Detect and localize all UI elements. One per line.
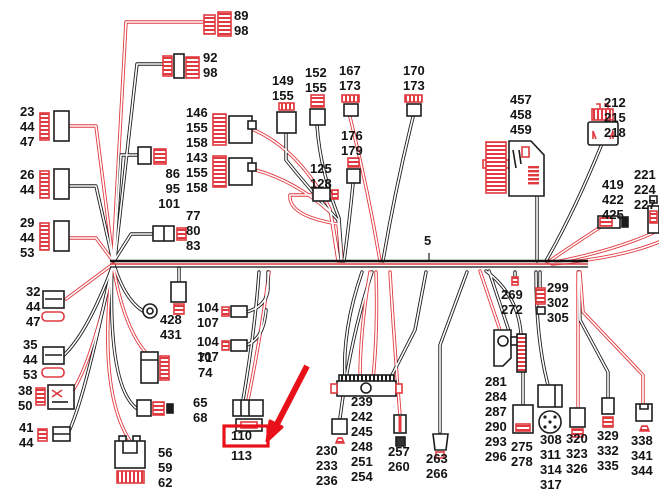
connector-299-302-305	[536, 288, 545, 314]
connector-65-68	[137, 400, 173, 416]
label-26-44: 26 44	[20, 167, 34, 197]
connector-77-80-83	[153, 226, 186, 241]
label-170-173: 170 173	[403, 63, 425, 93]
connector-32-44-47	[42, 291, 64, 321]
wire-black	[440, 272, 467, 432]
wire-red	[68, 238, 113, 261]
connector-stub-269-272	[512, 277, 518, 285]
label-146-155-158: 146 155 158	[186, 105, 208, 150]
label-299-302-305: 299 302 305	[547, 280, 569, 325]
wire-black	[114, 234, 155, 261]
connector-35-44-53	[42, 347, 64, 377]
connector-176-179	[347, 158, 360, 183]
connector-170-173	[405, 95, 422, 116]
label-329-332-335: 329 332 335	[597, 428, 619, 473]
connector-26-44	[40, 169, 69, 199]
label-125-128: 125 128	[310, 161, 332, 191]
wire-core	[114, 234, 155, 261]
label-338-341-344: 338 341 344	[631, 433, 653, 478]
label-419-422-425: 419 422 425	[602, 177, 624, 222]
label-38-50: 38 50	[18, 383, 32, 413]
label-275-278: 275 278	[511, 439, 533, 469]
label-263-266: 263 266	[426, 451, 448, 481]
label-176-179: 176 179	[341, 128, 363, 158]
connector-149-155	[277, 103, 296, 133]
connector-86-95-101	[138, 147, 166, 164]
label-110: 110	[231, 428, 252, 443]
label-104-107-lower: 104 107	[197, 334, 219, 364]
wire-black	[64, 265, 113, 355]
highlight-arrow	[267, 366, 307, 441]
connector-239-242-245-248-251-254	[331, 375, 402, 396]
label-113: 113	[231, 448, 252, 463]
label-152-155: 152 155	[305, 65, 327, 95]
label-65-68: 65 68	[193, 395, 207, 425]
wire-red	[360, 272, 370, 379]
connector-29-44-53	[40, 221, 69, 251]
label-212-215-218: 212 215 218	[604, 95, 626, 140]
label-89-98: 89 98	[234, 8, 248, 38]
connector-146-155-158	[213, 114, 256, 145]
connector-230-233-236	[332, 419, 347, 443]
label-239-242-245-248-251-254: 239 242 245 248 251 254	[351, 394, 373, 484]
label-428-431: 428 431	[160, 312, 182, 342]
label-281-284-287-290-293-296: 281 284 287 290 293 296	[485, 374, 507, 464]
connector-152-155	[310, 95, 325, 125]
control-unit-457-458-459	[483, 141, 544, 196]
label-269-272: 269 272	[501, 287, 523, 317]
connector-257-260	[394, 415, 406, 446]
wiring-diagram: 89 9892 9823 44 4726 4429 44 5332 44 473…	[0, 0, 659, 491]
label-230-233-236: 230 233 236	[316, 443, 338, 488]
connector-23-44-47	[40, 111, 69, 141]
label-23-44-47: 23 44 47	[20, 104, 34, 149]
wire-core	[64, 265, 113, 355]
label-257-260: 257 260	[388, 444, 410, 474]
wire-core	[344, 184, 353, 261]
connector-308-311-314-317	[538, 385, 562, 433]
connector-143-155-158	[213, 156, 256, 187]
connector-275-278	[513, 405, 533, 433]
label-320-323-326: 320 323 326	[566, 431, 588, 476]
wire-red	[68, 126, 113, 260]
connector-56-59-62	[115, 436, 145, 483]
connector-41-44	[38, 427, 70, 441]
wire-core	[440, 272, 467, 432]
label-77-80-83: 77 80 83	[186, 208, 200, 253]
label-86-95-101: 86 95 101	[158, 166, 180, 211]
label-35-44-53: 35 44 53	[23, 337, 37, 382]
label-143-155-158: 143 155 158	[186, 150, 208, 195]
connector-38-50	[36, 385, 74, 409]
connector-167-173	[342, 95, 359, 116]
wiring-diagram-canvas	[0, 0, 659, 491]
label-29-44-53: 29 44 53	[20, 215, 34, 260]
device-281-284-287-290-293-296	[494, 330, 526, 372]
label-32-44-47: 32 44 47	[26, 284, 40, 329]
label-56-59-62: 56 59 62	[158, 445, 172, 490]
connector-71-74	[141, 352, 169, 383]
label-221-224-227: 221 224 227	[634, 167, 656, 212]
label-167-173: 167 173	[339, 63, 361, 93]
label-308-311-314-317: 308 311 314 317	[540, 432, 562, 491]
connector-338-341-344	[636, 404, 652, 431]
label-main-5: 5	[424, 233, 431, 248]
connector-104-107-lower	[222, 340, 247, 351]
connector-104-107-upper	[222, 306, 247, 317]
label-104-107-upper: 104 107	[197, 300, 219, 330]
label-92-98: 92 98	[203, 50, 217, 80]
label-457-458-459: 457 458 459	[510, 92, 532, 137]
wire-core	[68, 126, 113, 260]
label-41-44: 41 44	[19, 420, 33, 450]
main-harness-trunk	[110, 253, 588, 267]
connector-89-98	[204, 12, 231, 36]
connector-92-98	[163, 54, 199, 78]
connector-329-332-335	[602, 398, 614, 427]
label-149-155: 149 155	[272, 73, 294, 103]
